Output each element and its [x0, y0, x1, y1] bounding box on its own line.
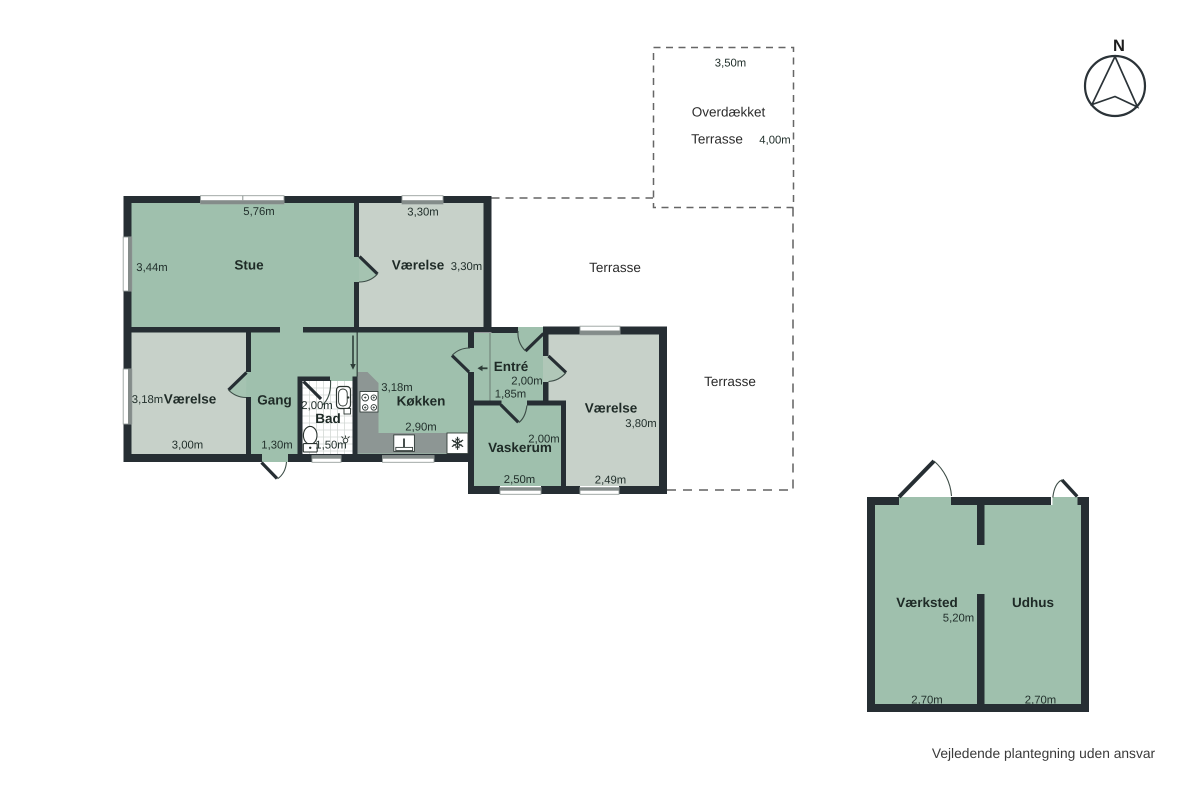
svg-text:2,50m: 2,50m [504, 474, 535, 486]
svg-text:Køkken: Køkken [397, 394, 446, 409]
svg-text:Værelse: Værelse [392, 258, 445, 273]
svg-text:2,00m: 2,00m [301, 400, 332, 412]
svg-text:2,00m: 2,00m [528, 434, 559, 446]
svg-text:2,70m: 2,70m [1025, 695, 1056, 707]
svg-text:Stue: Stue [234, 258, 264, 273]
svg-text:Terrasse: Terrasse [704, 374, 756, 389]
svg-text:1,50m: 1,50m [315, 440, 346, 452]
svg-text:3,18m: 3,18m [381, 382, 412, 394]
svg-text:Overdækket: Overdækket [692, 105, 766, 120]
svg-text:1,30m: 1,30m [261, 440, 292, 452]
svg-text:Værelse: Værelse [164, 392, 217, 407]
svg-text:N: N [1113, 37, 1125, 55]
svg-text:Bad: Bad [315, 411, 341, 426]
svg-text:3,30m: 3,30m [451, 261, 482, 273]
svg-text:3,30m: 3,30m [407, 207, 438, 219]
svg-text:3,00m: 3,00m [172, 440, 203, 452]
svg-text:1,85m: 1,85m [495, 389, 526, 401]
svg-text:2,70m: 2,70m [911, 695, 942, 707]
svg-text:Entré: Entré [494, 359, 529, 374]
svg-text:Værksted: Værksted [896, 595, 958, 610]
svg-text:2,90m: 2,90m [405, 422, 436, 434]
svg-text:3,50m: 3,50m [715, 58, 746, 70]
svg-text:4,00m: 4,00m [759, 135, 790, 147]
svg-text:Gang: Gang [257, 393, 292, 408]
svg-text:Udhus: Udhus [1012, 595, 1054, 610]
svg-text:3,18m: 3,18m [132, 394, 163, 406]
svg-text:Terrasse: Terrasse [691, 132, 743, 147]
svg-text:2,00m: 2,00m [511, 376, 542, 388]
svg-text:Terrasse: Terrasse [589, 260, 641, 275]
svg-text:5,20m: 5,20m [943, 613, 974, 625]
svg-text:2,49m: 2,49m [595, 475, 626, 487]
svg-text:3,44m: 3,44m [136, 262, 167, 274]
svg-text:3,80m: 3,80m [625, 418, 656, 430]
svg-text:5,76m: 5,76m [243, 206, 274, 218]
svg-text:Værelse: Værelse [585, 401, 638, 416]
svg-text:Vejledende plantegning uden an: Vejledende plantegning uden ansvar [932, 746, 1156, 761]
